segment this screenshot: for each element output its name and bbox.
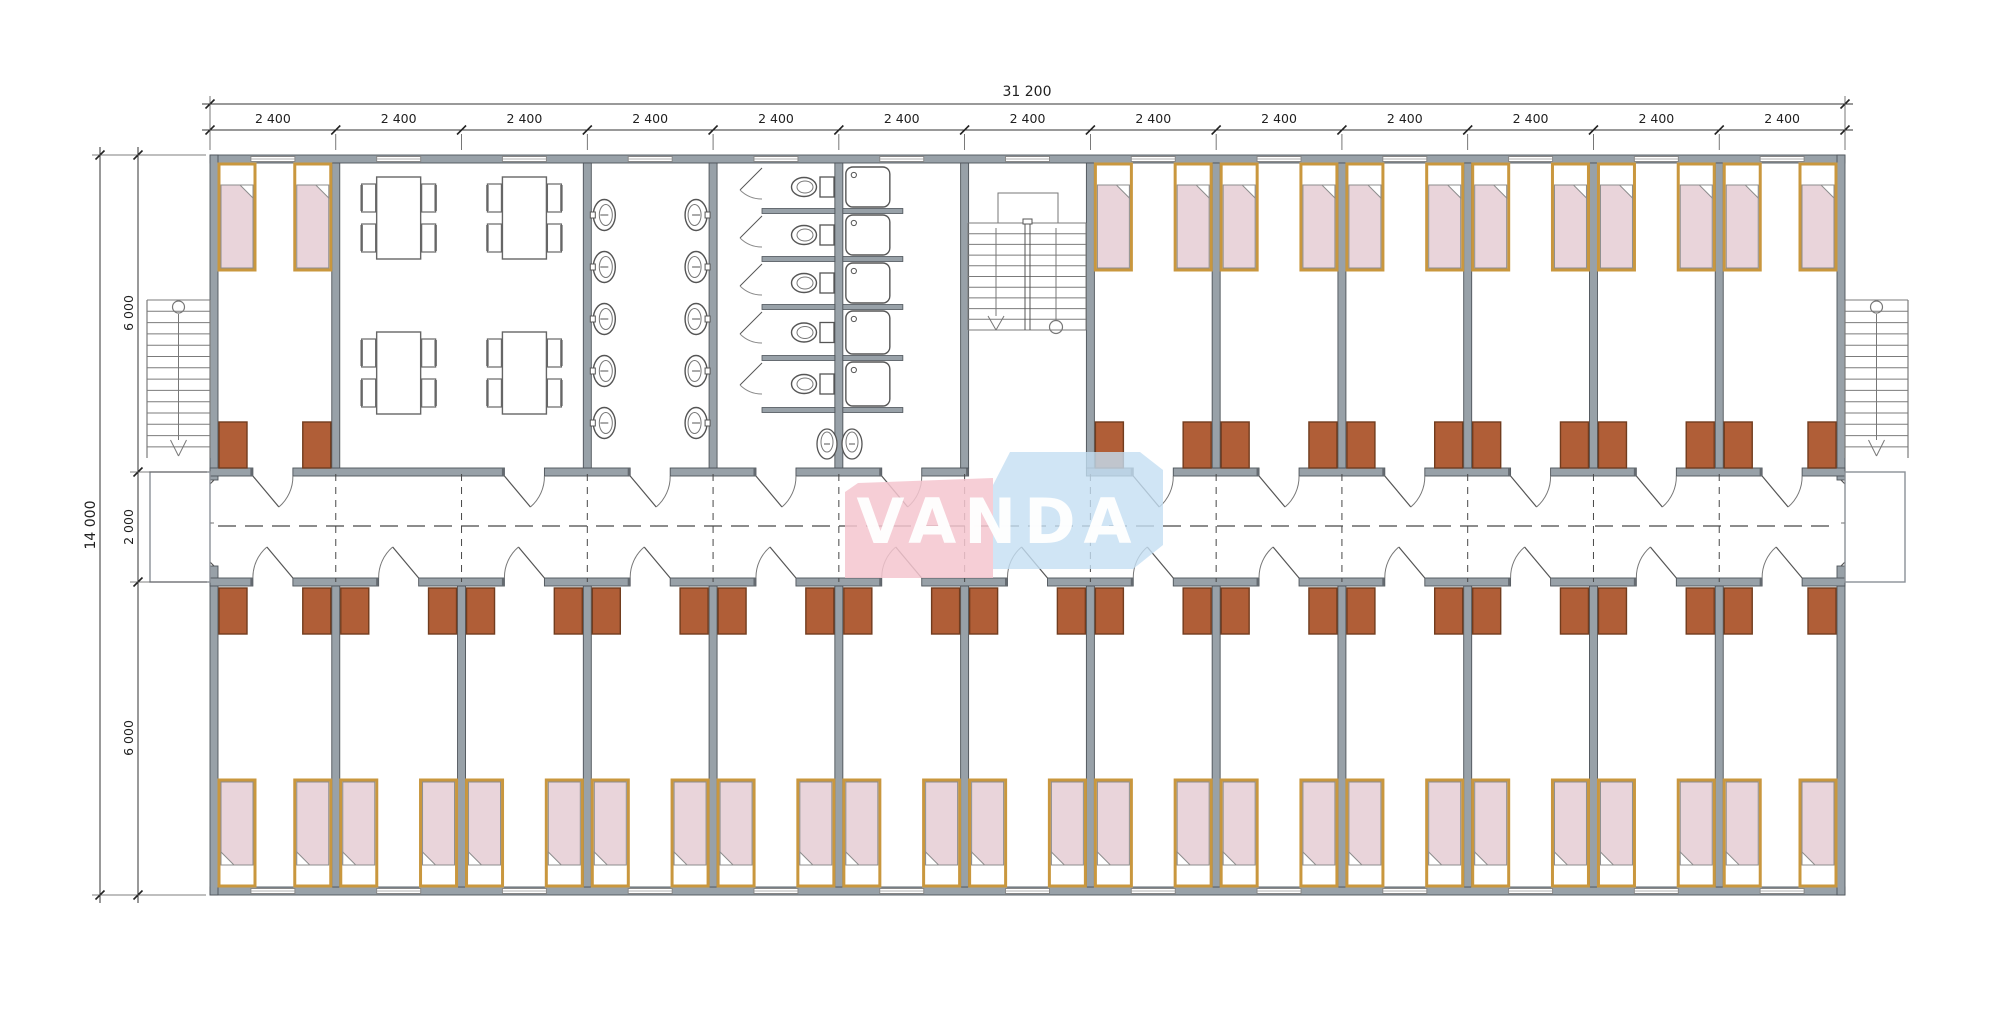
svg-text:2 400: 2 400: [1135, 111, 1171, 126]
bed: [1347, 164, 1383, 270]
bed: [295, 164, 331, 270]
bed: [1598, 780, 1634, 886]
bedside-cabinet: [806, 588, 834, 634]
svg-text:2 400: 2 400: [1010, 111, 1046, 126]
bedside-cabinet: [1309, 422, 1337, 468]
bedside-cabinet: [844, 588, 872, 634]
bedside-cabinet: [1560, 422, 1588, 468]
svg-text:2 000: 2 000: [121, 509, 136, 545]
urinal: [817, 429, 837, 459]
bedside-cabinet: [303, 588, 331, 634]
svg-text:2 400: 2 400: [884, 111, 920, 126]
toilet: [792, 374, 835, 394]
bedside-cabinet: [1347, 422, 1375, 468]
svg-text:14 000: 14 000: [83, 501, 99, 550]
bed: [421, 780, 457, 886]
bed: [592, 780, 628, 886]
bed: [1095, 164, 1131, 270]
bedside-cabinet: [1598, 588, 1626, 634]
bedside-cabinet: [1057, 588, 1085, 634]
bed: [1800, 780, 1836, 886]
svg-text:2 400: 2 400: [1261, 111, 1297, 126]
svg-text:2 400: 2 400: [758, 111, 794, 126]
bed: [798, 780, 834, 886]
bedside-cabinet: [303, 422, 331, 468]
bedside-cabinet: [1686, 588, 1714, 634]
bed: [1724, 164, 1760, 270]
external-staircase-west: [147, 300, 210, 458]
bedside-cabinet: [1435, 588, 1463, 634]
bedside-cabinet: [1221, 422, 1249, 468]
bedside-cabinet: [932, 588, 960, 634]
bed: [1049, 780, 1085, 886]
svg-text:2 400: 2 400: [255, 111, 291, 126]
bedside-cabinet: [219, 588, 247, 634]
bedside-cabinet: [1808, 588, 1836, 634]
bed: [1552, 164, 1588, 270]
bedside-cabinet: [592, 588, 620, 634]
bedside-cabinet: [1347, 588, 1375, 634]
bedside-cabinet: [219, 422, 247, 468]
bed: [844, 780, 880, 886]
bedside-cabinet: [1724, 422, 1752, 468]
bed: [924, 780, 960, 886]
toilet: [792, 323, 835, 343]
bed: [970, 780, 1006, 886]
bedside-cabinet: [1183, 588, 1211, 634]
bedside-cabinet: [1095, 588, 1123, 634]
brand-watermark: VANDA: [850, 478, 1146, 566]
bedside-cabinet: [1560, 588, 1588, 634]
bedside-cabinet: [1808, 422, 1836, 468]
bedside-cabinet: [1221, 588, 1249, 634]
entry-porch-west: [150, 472, 210, 582]
bedside-cabinet: [1686, 422, 1714, 468]
bed: [1427, 780, 1463, 886]
bed: [1221, 164, 1257, 270]
svg-text:2 400: 2 400: [1513, 111, 1549, 126]
bedside-cabinet: [1473, 588, 1501, 634]
bed: [219, 780, 255, 886]
bed: [219, 164, 255, 270]
svg-text:2 400: 2 400: [632, 111, 668, 126]
bed: [1175, 780, 1211, 886]
bed: [1221, 780, 1257, 886]
bed: [341, 780, 377, 886]
bedside-cabinet: [341, 588, 369, 634]
bed: [1552, 780, 1588, 886]
bed: [1473, 780, 1509, 886]
bed: [1724, 780, 1760, 886]
bed: [1800, 164, 1836, 270]
svg-text:2 400: 2 400: [1387, 111, 1423, 126]
bedside-cabinet: [467, 588, 495, 634]
bedside-cabinet: [1473, 422, 1501, 468]
external-staircase-east: [1845, 300, 1908, 458]
bed: [546, 780, 582, 886]
svg-text:6 000: 6 000: [121, 720, 136, 756]
bed: [1678, 780, 1714, 886]
bed: [1301, 164, 1337, 270]
bed: [295, 780, 331, 886]
toilet: [792, 225, 835, 245]
svg-text:2 400: 2 400: [507, 111, 543, 126]
floor-plan-canvas: 31 2002 4002 4002 4002 4002 4002 4002 40…: [0, 0, 2000, 1032]
bed: [1095, 780, 1131, 886]
svg-text:2 400: 2 400: [1764, 111, 1800, 126]
bed: [672, 780, 708, 886]
svg-text:2 400: 2 400: [381, 111, 417, 126]
bed: [718, 780, 754, 886]
bedside-cabinet: [1183, 422, 1211, 468]
bed: [1427, 164, 1463, 270]
bed: [1678, 164, 1714, 270]
bedside-cabinet: [1724, 588, 1752, 634]
bed: [1598, 164, 1634, 270]
bed: [1347, 780, 1383, 886]
svg-text:6 000: 6 000: [121, 295, 136, 331]
bed: [1473, 164, 1509, 270]
bedside-cabinet: [1435, 422, 1463, 468]
toilet: [792, 273, 835, 293]
bed: [1175, 164, 1211, 270]
svg-text:2 400: 2 400: [1638, 111, 1674, 126]
svg-text:31 200: 31 200: [1003, 84, 1052, 100]
bedside-cabinet: [554, 588, 582, 634]
urinal: [842, 429, 862, 459]
bedside-cabinet: [680, 588, 708, 634]
toilet: [792, 177, 835, 197]
bedside-cabinet: [970, 588, 998, 634]
bedside-cabinet: [1309, 588, 1337, 634]
bedside-cabinet: [429, 588, 457, 634]
entry-porch-east: [1845, 472, 1905, 582]
bedside-cabinet: [1598, 422, 1626, 468]
bedside-cabinet: [718, 588, 746, 634]
bed: [467, 780, 503, 886]
bed: [1301, 780, 1337, 886]
